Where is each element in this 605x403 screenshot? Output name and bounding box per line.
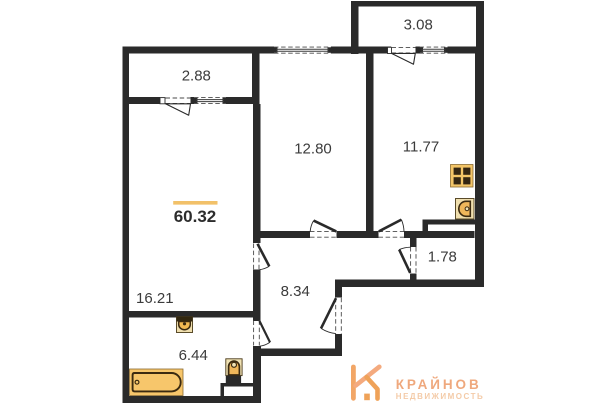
svg-text:12.80: 12.80	[294, 141, 332, 158]
svg-text:8.34: 8.34	[281, 283, 310, 300]
svg-text:16.21: 16.21	[136, 290, 174, 307]
svg-text:6.44: 6.44	[179, 347, 208, 364]
svg-text:3.08: 3.08	[404, 16, 433, 33]
svg-text:НЕДВИЖИМОСТЬ: НЕДВИЖИМОСТЬ	[396, 392, 484, 401]
svg-text:2.88: 2.88	[182, 67, 211, 84]
svg-text:60.32: 60.32	[174, 207, 217, 226]
svg-text:11.77: 11.77	[403, 139, 439, 156]
svg-text:КРАЙНОВ: КРАЙНОВ	[396, 377, 482, 392]
svg-text:1.78: 1.78	[428, 248, 457, 265]
